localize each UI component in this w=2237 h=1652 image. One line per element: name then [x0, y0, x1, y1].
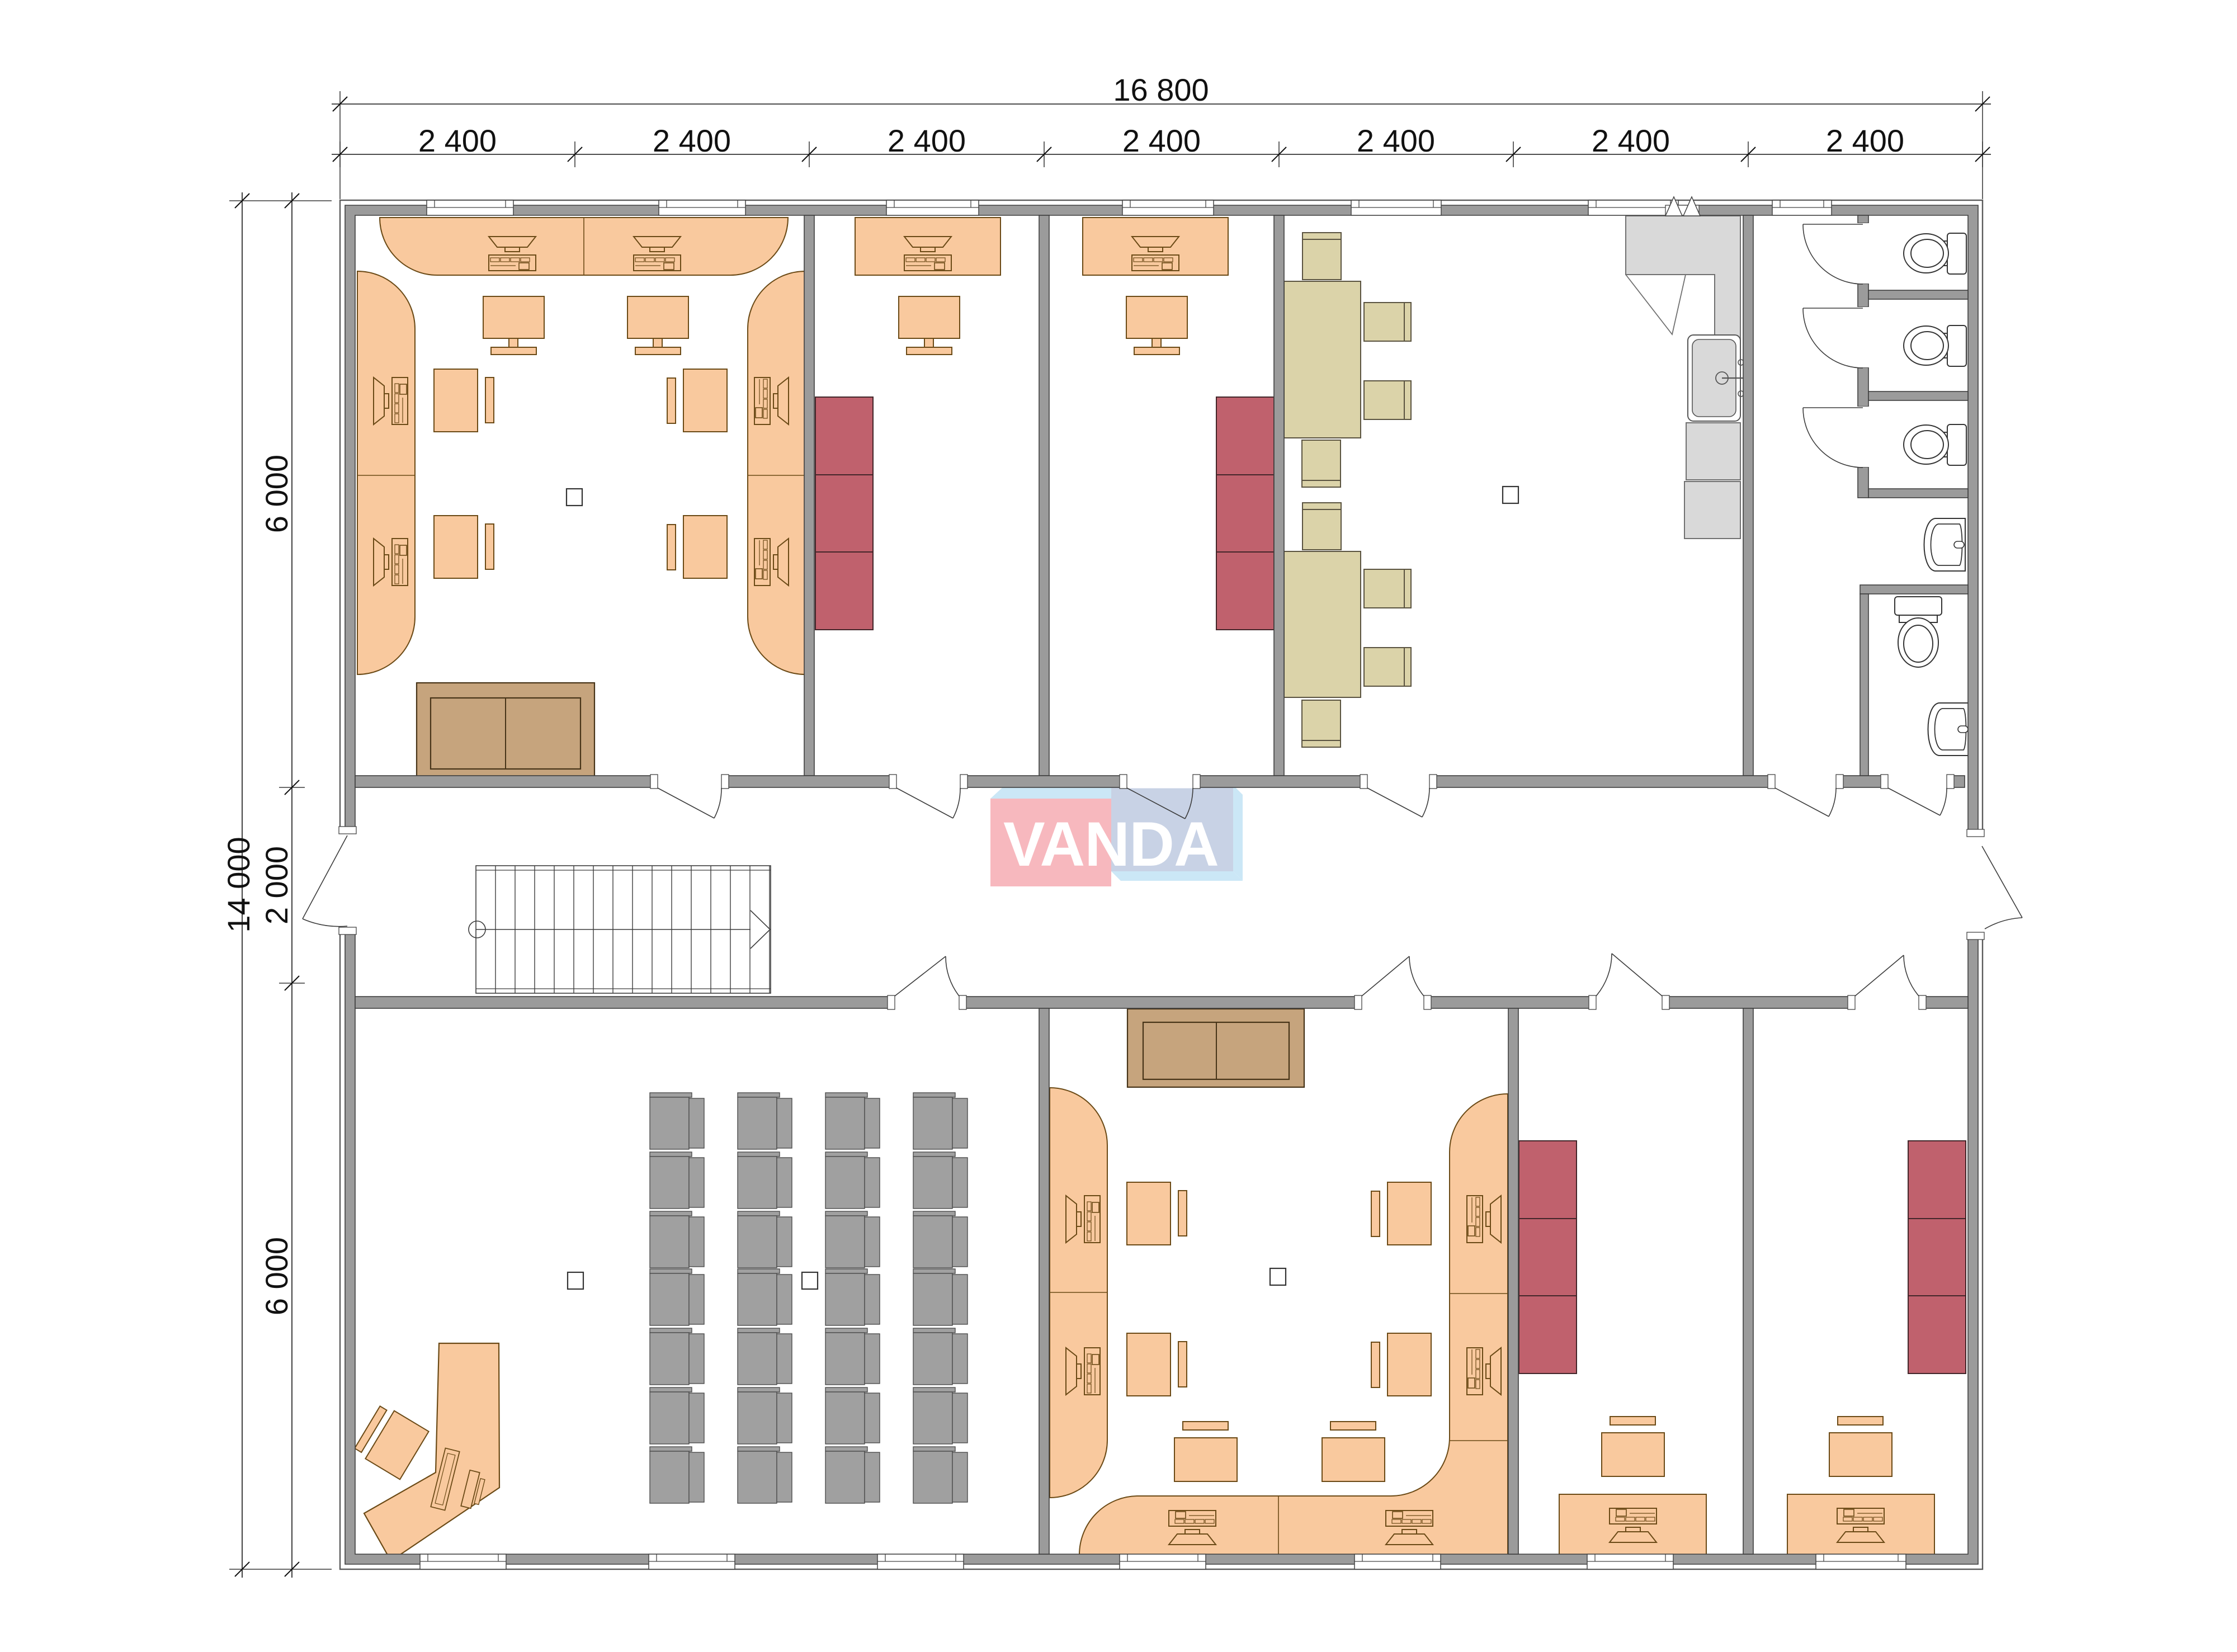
svg-text:2 000: 2 000: [259, 846, 294, 924]
svg-text:VANDA: VANDA: [1003, 809, 1219, 879]
svg-text:16 800: 16 800: [1113, 72, 1209, 107]
svg-text:6 000: 6 000: [259, 1237, 294, 1315]
svg-text:2 400: 2 400: [1826, 123, 1904, 158]
svg-text:2 400: 2 400: [1122, 123, 1201, 158]
svg-text:2 400: 2 400: [418, 123, 497, 158]
svg-text:2 400: 2 400: [1357, 123, 1435, 158]
svg-text:6 000: 6 000: [259, 455, 294, 533]
svg-text:14 000: 14 000: [221, 837, 256, 932]
svg-text:2 400: 2 400: [888, 123, 966, 158]
svg-text:2 400: 2 400: [653, 123, 731, 158]
svg-text:2 400: 2 400: [1592, 123, 1670, 158]
